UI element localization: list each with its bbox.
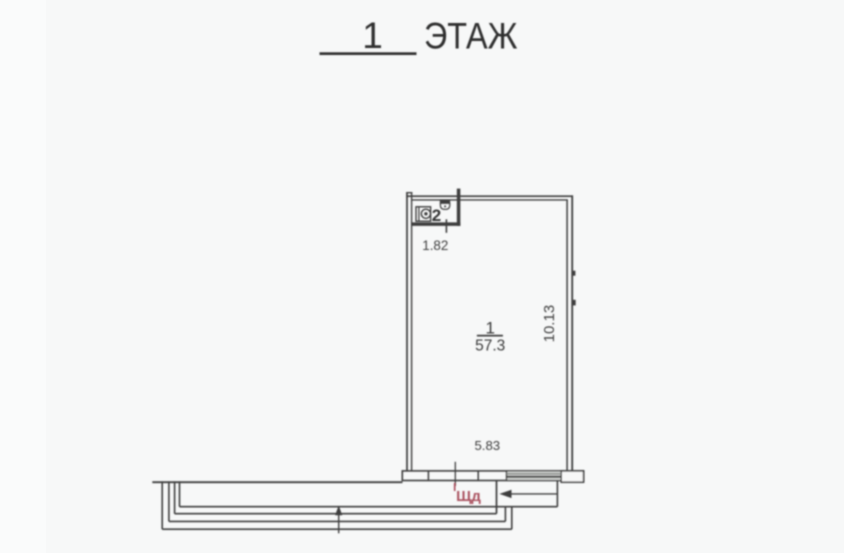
svg-text:Щд: Щд [456, 488, 481, 505]
svg-text:57.3: 57.3 [475, 338, 505, 355]
svg-text:1.82: 1.82 [422, 238, 448, 253]
svg-text:ЭТАЖ: ЭТАЖ [424, 16, 518, 57]
svg-text:5.83: 5.83 [474, 438, 500, 453]
svg-text:10.13: 10.13 [541, 305, 558, 343]
svg-text:1: 1 [485, 319, 494, 338]
svg-text:1: 1 [362, 15, 383, 56]
svg-text:2: 2 [432, 206, 441, 225]
